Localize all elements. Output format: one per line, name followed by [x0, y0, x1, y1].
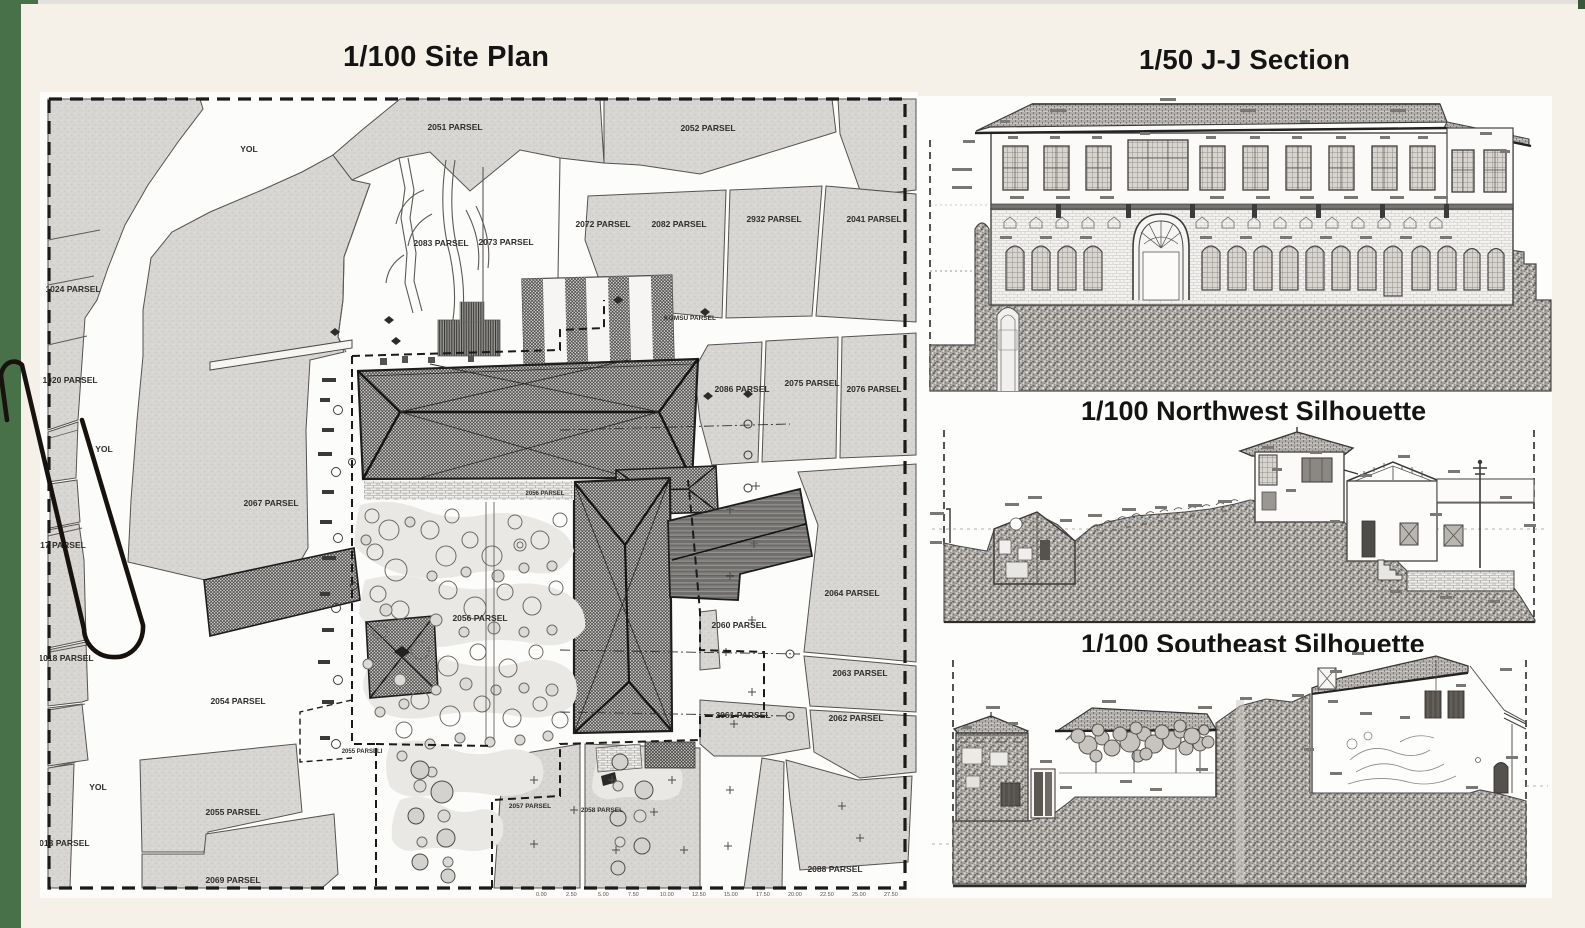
- svg-text:0.00: 0.00: [536, 892, 547, 898]
- svg-text:2.50: 2.50: [566, 892, 577, 898]
- svg-text:2051 PARSEL: 2051 PARSEL: [427, 122, 482, 132]
- svg-text:2076 PARSEL: 2076 PARSEL: [846, 384, 901, 394]
- svg-text:2088 PARSEL: 2088 PARSEL: [807, 864, 862, 874]
- svg-text:7.50: 7.50: [628, 892, 639, 898]
- svg-text:2083 PARSEL: 2083 PARSEL: [413, 238, 468, 248]
- svg-text:2069 PARSEL: 2069 PARSEL: [205, 875, 260, 885]
- svg-text:20.00: 20.00: [788, 892, 802, 898]
- svg-text:2055 PARSEL: 2055 PARSEL: [205, 807, 260, 817]
- svg-text:17.50: 17.50: [756, 892, 770, 898]
- svg-text:2086 PARSEL: 2086 PARSEL: [714, 384, 769, 394]
- svg-text:22.50: 22.50: [820, 892, 834, 898]
- svg-text:2057 PARSEL: 2057 PARSEL: [509, 803, 551, 810]
- svg-text:2932 PARSEL: 2932 PARSEL: [746, 214, 801, 224]
- svg-text:2082 PARSEL: 2082 PARSEL: [651, 219, 706, 229]
- svg-text:2061 PARSEL: 2061 PARSEL: [715, 710, 770, 720]
- svg-text:2052 PARSEL: 2052 PARSEL: [680, 123, 735, 133]
- svg-text:2075 PARSEL: 2075 PARSEL: [784, 378, 839, 388]
- svg-text:2064 PARSEL: 2064 PARSEL: [824, 588, 879, 598]
- svg-text:YOL: YOL: [89, 782, 106, 792]
- svg-text:KOMSU PARSEL: KOMSU PARSEL: [664, 315, 716, 322]
- svg-text:1013 PARSEL: 1013 PARSEL: [40, 838, 90, 848]
- svg-text:27.50: 27.50: [884, 892, 898, 898]
- svg-text:1024 PARSEL: 1024 PARSEL: [45, 284, 100, 294]
- svg-text:12.50: 12.50: [692, 892, 706, 898]
- svg-text:2055 PARSELI: 2055 PARSELI: [342, 749, 383, 755]
- svg-text:2063 PARSEL: 2063 PARSEL: [832, 668, 887, 678]
- svg-text:2067 PARSEL: 2067 PARSEL: [243, 498, 298, 508]
- svg-text:2062 PARSEL: 2062 PARSEL: [828, 713, 883, 723]
- svg-text:2054 PARSEL: 2054 PARSEL: [210, 696, 265, 706]
- svg-text:25.00: 25.00: [852, 892, 866, 898]
- svg-text:2058 PARSEL: 2058 PARSEL: [581, 807, 623, 814]
- svg-text:5.00: 5.00: [598, 892, 609, 898]
- svg-text:2056 PARSEL: 2056 PARSEL: [452, 613, 507, 623]
- svg-text:2041 PARSEL: 2041 PARSEL: [846, 214, 901, 224]
- svg-text:2060 PARSEL: 2060 PARSEL: [711, 620, 766, 630]
- svg-text:2056 PARSEL: 2056 PARSEL: [526, 491, 565, 497]
- svg-text:2073 PARSEL: 2073 PARSEL: [478, 237, 533, 247]
- svg-text:15.00: 15.00: [724, 892, 738, 898]
- svg-text:10.00: 10.00: [660, 892, 674, 898]
- svg-text:2072 PARSEL: 2072 PARSEL: [575, 219, 630, 229]
- svg-text:YOL: YOL: [240, 144, 257, 154]
